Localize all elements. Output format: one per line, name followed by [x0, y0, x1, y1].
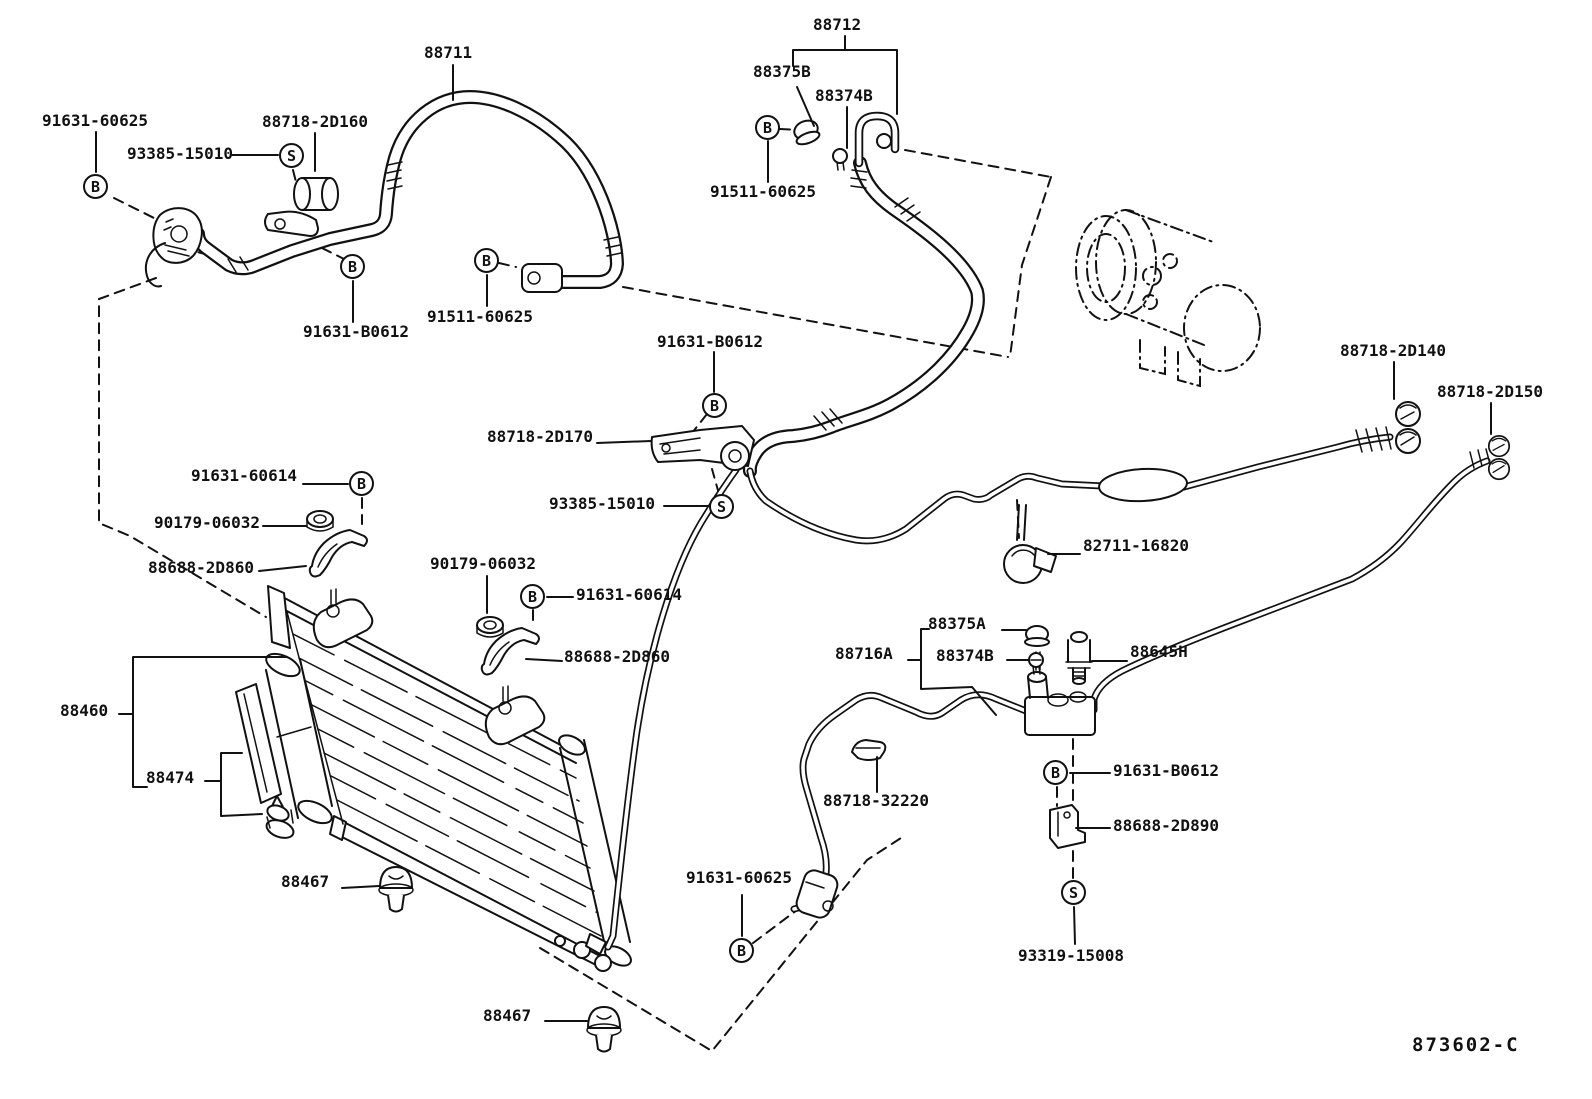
- nut-90179: [307, 511, 333, 531]
- bracket-2d890: [1050, 805, 1085, 848]
- condenser-mount-boss: [314, 589, 373, 647]
- grommet-88467: [379, 867, 413, 912]
- compressor-reference-outline: [1076, 210, 1260, 386]
- part-label-82711-16820: 82711-16820: [1083, 537, 1189, 555]
- part-label-93385-15010-2: 93385-15010: [549, 495, 655, 513]
- pressure-switch: [1066, 632, 1092, 684]
- bracket-2d860: [310, 530, 367, 576]
- part-label-88688-2d890: 88688-2D890: [1113, 817, 1219, 835]
- part-label-91631-60625: 91631-60625: [42, 112, 148, 130]
- diagram-line-art: [0, 0, 1592, 1099]
- bolt-marker: B: [1043, 760, 1068, 785]
- part-label-88718-32220: 88718-32220: [823, 792, 929, 810]
- pipe-bracket-2d170: [652, 426, 754, 470]
- bolt-marker: B: [702, 393, 727, 418]
- clamp-2d140: [1396, 402, 1420, 453]
- pipe-end-bracket: [794, 868, 840, 920]
- part-label-88711: 88711: [424, 44, 472, 62]
- bolt-marker: B: [755, 115, 780, 140]
- part-label-88718-2d150: 88718-2D150: [1437, 383, 1543, 401]
- part-label-91631-b0612: 91631-B0612: [303, 323, 409, 341]
- part-label-88718-2d140: 88718-2D140: [1340, 342, 1446, 360]
- screw-marker: S: [1061, 880, 1086, 905]
- desiccant-element: [236, 684, 281, 803]
- part-label-88460: 88460: [60, 702, 108, 720]
- bolt-marker: B: [83, 174, 108, 199]
- part-label-88374b-2: 88374B: [936, 647, 994, 665]
- part-label-91511-60625: 91511-60625: [710, 183, 816, 201]
- liquid-pipe-front: [750, 427, 1391, 541]
- bolt-marker: B: [349, 471, 374, 496]
- part-label-88688-2d860: 88688-2D860: [148, 559, 254, 577]
- part-label-90179-06032-2: 90179-06032: [430, 555, 536, 573]
- pipe-clamp-2d160: [265, 178, 338, 236]
- part-label-88718-2d170: 88718-2D170: [487, 428, 593, 446]
- screw-marker: S: [279, 143, 304, 168]
- discharge-hose-88712: [750, 116, 978, 471]
- part-label-91631-b0612-3: 91631-B0612: [1113, 762, 1219, 780]
- bolt-marker: B: [474, 248, 499, 273]
- part-label-88688-2d860-2: 88688-2D860: [564, 648, 670, 666]
- part-label-88474: 88474: [146, 769, 194, 787]
- receiver-plug: [264, 796, 296, 841]
- grommet-88467: [587, 1007, 621, 1052]
- nut-90179: [477, 617, 503, 637]
- part-label-88712: 88712: [813, 16, 861, 34]
- condenser-bottom-fittings: [555, 934, 611, 971]
- clamp-32220: [852, 740, 885, 760]
- bolt-marker: B: [520, 584, 545, 609]
- part-label-88467: 88467: [281, 873, 329, 891]
- diagram-code: 873602-C: [1412, 1036, 1520, 1054]
- parts-diagram-cooler-piping: 88711 88712 88375B 88374B 91511-60625 91…: [0, 0, 1592, 1099]
- part-label-88375b: 88375B: [753, 63, 811, 81]
- clamp-2d150: [1489, 436, 1509, 479]
- part-label-91631-b0612-2: 91631-B0612: [657, 333, 763, 351]
- part-label-91631-60625-2: 91631-60625: [686, 869, 792, 887]
- part-label-88716a: 88716A: [835, 645, 893, 663]
- clamp-82711: [1004, 505, 1056, 583]
- part-label-91631-60614-2: 91631-60614: [576, 586, 682, 604]
- condenser-mount-boss: [486, 686, 545, 744]
- pipe-muffler: [1098, 467, 1188, 504]
- part-label-88374b: 88374B: [815, 87, 873, 105]
- suction-hose-88711: [146, 97, 621, 292]
- condenser-assembly: [236, 470, 736, 971]
- part-label-88467-2: 88467: [483, 1007, 531, 1025]
- part-label-90179-06032: 90179-06032: [154, 514, 260, 532]
- hose-eye-fitting: [877, 134, 891, 148]
- part-label-91511-60625-2: 91511-60625: [427, 308, 533, 326]
- part-label-88718-2d160: 88718-2D160: [262, 113, 368, 131]
- bracket-2d860: [482, 628, 539, 674]
- bolt-marker: B: [340, 254, 365, 279]
- part-label-91631-60614: 91631-60614: [191, 467, 297, 485]
- part-label-93385-15010: 93385-15010: [127, 145, 233, 163]
- evaporator-connector: [146, 208, 202, 286]
- part-label-88375a: 88375A: [928, 615, 986, 633]
- bolt-marker: B: [729, 938, 754, 963]
- screw-marker: S: [709, 494, 734, 519]
- part-label-88645h: 88645H: [1130, 643, 1188, 661]
- part-label-93319-15008: 93319-15008: [1018, 947, 1124, 965]
- service-valve-caps: [792, 117, 1049, 674]
